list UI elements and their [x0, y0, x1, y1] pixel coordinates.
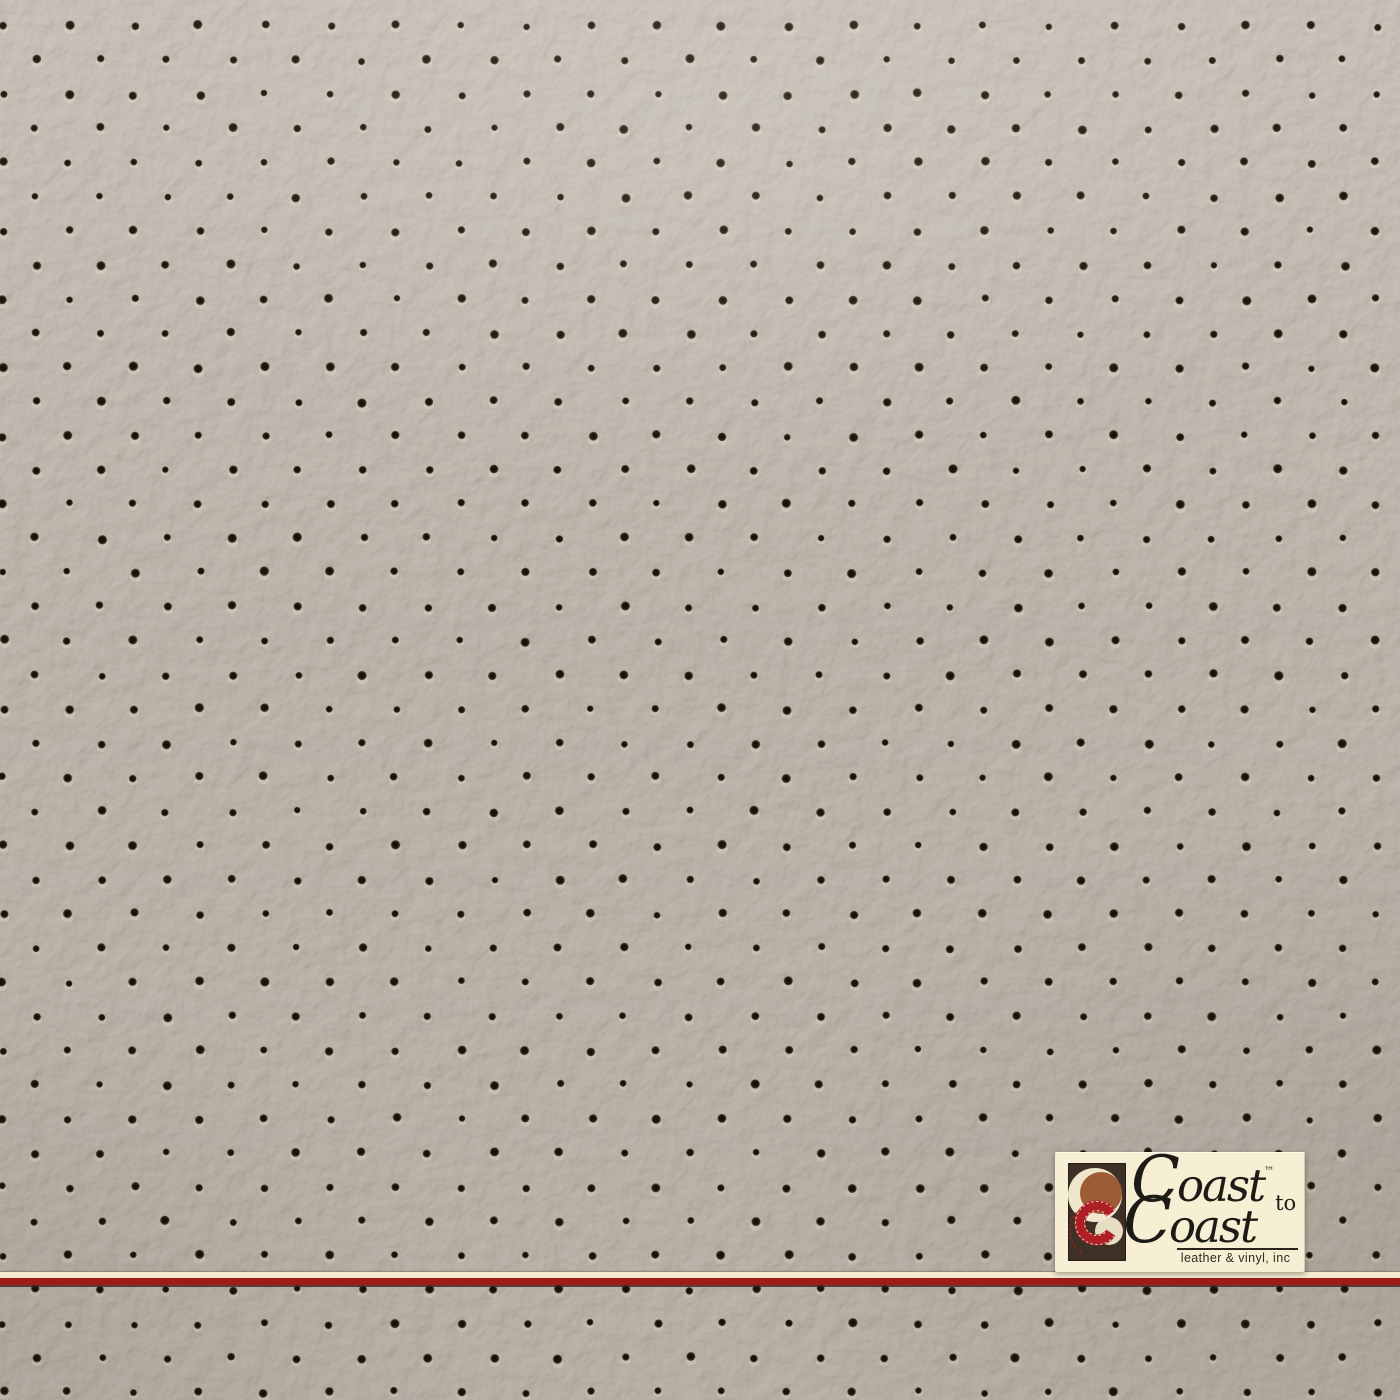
perforation-hole — [1340, 672, 1350, 684]
perforation-hole — [1370, 157, 1380, 169]
perforation-hole — [29, 1218, 38, 1229]
perforation-hole — [781, 498, 793, 512]
perforation-hole — [785, 160, 794, 170]
perforation-hole — [555, 738, 565, 750]
perforation-hole — [621, 397, 630, 408]
perforation-hole — [162, 1148, 171, 1158]
perforation-hole — [0, 634, 10, 648]
perforation-hole — [1338, 875, 1349, 888]
perforation-hole — [63, 1116, 72, 1127]
perforation-hole — [782, 91, 793, 104]
perforation-hole — [1013, 945, 1023, 957]
perforation-hole — [781, 1387, 791, 1399]
perforation-hole — [0, 228, 9, 240]
perforation-hole — [196, 841, 205, 852]
logo-word2-rest: oast — [1169, 1200, 1256, 1253]
perforation-hole — [816, 876, 826, 888]
perforation-hole — [1044, 363, 1053, 374]
perforation-hole — [1338, 55, 1347, 66]
perforation-hole — [848, 20, 859, 33]
perforation-hole — [948, 1079, 958, 1091]
perforation-hole — [1175, 1388, 1184, 1398]
perforation-hole — [160, 809, 169, 820]
perforation-hole — [1207, 535, 1216, 546]
perforation-hole — [193, 1321, 202, 1332]
perforation-hole — [98, 673, 107, 683]
perforation-hole — [1239, 705, 1250, 718]
perforation-hole — [1043, 569, 1054, 582]
perforation-hole — [520, 296, 529, 307]
perforation-hole — [752, 878, 761, 888]
perforation-hole — [1076, 1354, 1086, 1366]
perforation-hole — [131, 294, 140, 305]
perforation-hole — [1012, 467, 1020, 477]
perforation-hole — [555, 1013, 564, 1023]
perforation-hole — [228, 465, 239, 478]
perforation-hole — [653, 912, 662, 922]
perforation-hole — [1174, 364, 1185, 377]
perforation-hole — [553, 55, 562, 66]
perforation-hole — [324, 1321, 334, 1332]
perforation-hole — [458, 363, 467, 374]
perforation-hole — [750, 399, 759, 410]
perforation-hole — [1174, 773, 1184, 785]
perforation-hole — [194, 1249, 206, 1263]
perforation-hole — [915, 774, 924, 785]
perforation-hole — [718, 364, 727, 375]
perforation-hole — [650, 296, 661, 309]
perforation-hole — [650, 1183, 662, 1197]
perforation-hole — [914, 430, 925, 443]
perforation-hole — [1241, 362, 1251, 374]
perforation-hole — [1241, 89, 1250, 100]
perforation-hole — [160, 260, 170, 272]
perforation-hole — [422, 328, 431, 339]
perforation-hole — [1308, 842, 1317, 853]
perforation-hole — [1240, 1319, 1252, 1333]
perforation-hole — [1339, 1012, 1347, 1022]
perforation-hole — [261, 20, 271, 32]
perforation-hole — [781, 706, 792, 719]
perforation-hole — [1240, 431, 1249, 441]
perforation-hole — [260, 1319, 269, 1330]
perforation-hole — [653, 978, 663, 990]
perforation-hole — [130, 1182, 141, 1195]
perforation-hole — [161, 1286, 170, 1297]
perforation-hole — [1208, 1080, 1218, 1092]
perforation-hole — [326, 636, 335, 647]
perforation-hole — [881, 1011, 890, 1022]
perforation-hole — [359, 261, 367, 271]
perforation-hole — [1371, 431, 1381, 443]
perforation-hole — [521, 978, 530, 989]
perforation-hole — [130, 22, 140, 34]
perforation-hole — [848, 841, 857, 852]
perforation-hole — [360, 533, 370, 544]
perforation-hole — [229, 739, 237, 749]
perforation-hole — [489, 396, 499, 408]
perforation-hole — [1077, 602, 1086, 612]
perforation-hole — [491, 877, 499, 887]
perforation-hole — [1371, 1251, 1381, 1263]
perforation-hole — [1177, 22, 1187, 34]
perforation-hole — [585, 908, 596, 922]
perforation-hole — [816, 1012, 826, 1025]
perforation-hole — [881, 1219, 891, 1230]
perforation-hole — [1110, 1113, 1121, 1126]
perforation-hole — [423, 1012, 432, 1023]
perforation-hole — [260, 637, 269, 648]
perforation-hole — [97, 535, 109, 549]
perforation-hole — [585, 1047, 596, 1060]
perforation-hole — [685, 1148, 695, 1160]
perforation-hole — [651, 20, 662, 33]
perforation-hole — [717, 91, 728, 105]
perforation-hole — [618, 124, 629, 138]
perforation-hole — [62, 567, 71, 577]
perforation-hole — [1142, 536, 1151, 547]
perforation-hole — [1370, 501, 1380, 513]
perforation-hole — [393, 295, 401, 305]
perforation-hole — [195, 636, 204, 647]
perforation-hole — [784, 296, 794, 308]
perforation-hole — [194, 159, 203, 170]
perforation-hole — [1338, 466, 1349, 479]
perforation-hole — [95, 1285, 105, 1297]
perforation-hole — [488, 1013, 497, 1024]
perforation-hole — [162, 1081, 173, 1095]
perforation-hole — [424, 945, 433, 955]
perforation-hole — [127, 1115, 138, 1128]
perforation-hole — [31, 328, 41, 340]
perforation-hole — [488, 808, 499, 821]
perforation-hole — [358, 604, 368, 616]
perforation-hole — [980, 156, 991, 170]
perforation-hole — [1177, 637, 1186, 648]
perforation-hole — [226, 943, 237, 956]
perforation-hole — [979, 226, 990, 239]
perforation-hole — [1307, 978, 1318, 991]
perforation-hole — [1369, 635, 1380, 649]
perforation-hole — [1143, 1012, 1153, 1024]
perforation-hole — [1373, 24, 1382, 35]
perforation-hole — [291, 532, 303, 546]
perforation-hole — [620, 1149, 629, 1160]
perforation-hole — [357, 739, 366, 750]
perforation-hole — [424, 1217, 435, 1230]
perforation-hole — [1108, 909, 1119, 922]
perforation-hole — [685, 1352, 696, 1366]
perforation-hole — [389, 772, 399, 784]
perforation-hole — [651, 705, 660, 716]
perforation-hole — [258, 771, 269, 785]
perforation-hole — [881, 1080, 890, 1091]
perforation-hole — [915, 568, 924, 579]
perforation-hole — [588, 431, 599, 444]
perforation-hole — [356, 1354, 367, 1367]
perforation-hole — [30, 1079, 40, 1091]
perforation-hole — [750, 740, 761, 753]
perforation-hole — [326, 500, 336, 513]
perforation-hole — [1338, 191, 1349, 204]
perforation-hole — [290, 55, 301, 68]
perforation-hole — [652, 500, 660, 510]
perforation-hole — [882, 398, 893, 411]
perforation-hole — [1373, 1183, 1382, 1194]
perforation-hole — [554, 1217, 565, 1230]
perforation-hole — [1307, 365, 1315, 375]
perforation-hole — [1338, 330, 1349, 343]
perforation-hole — [260, 1184, 270, 1195]
perforation-hole — [783, 22, 794, 36]
perforation-hole — [1207, 808, 1217, 820]
perforation-hole — [489, 56, 500, 69]
perforation-hole — [389, 1387, 398, 1398]
perforation-hole — [914, 1045, 923, 1055]
perforation-hole — [0, 1182, 7, 1192]
perforation-hole — [192, 364, 204, 378]
perforation-hole — [291, 1081, 300, 1091]
perforation-hole — [490, 534, 499, 544]
perforation-hole — [882, 672, 891, 683]
perforation-hole — [1307, 909, 1316, 920]
perforation-hole — [1177, 567, 1188, 580]
perforation-hole — [946, 1215, 957, 1228]
perforation-hole — [65, 980, 73, 990]
perforation-hole — [390, 362, 401, 375]
perforation-hole — [95, 122, 105, 135]
perforation-hole — [31, 54, 42, 67]
perforation-hole — [390, 20, 400, 33]
perforation-hole — [457, 774, 466, 784]
perforation-hole — [717, 500, 728, 513]
perforation-hole — [913, 22, 922, 33]
perforation-hole — [946, 604, 954, 614]
perforation-hole — [1176, 1318, 1188, 1332]
perforation-hole — [1338, 123, 1348, 135]
perforation-hole — [1076, 876, 1087, 889]
perforation-hole — [1373, 842, 1383, 854]
perforation-hole — [1273, 671, 1285, 685]
perforation-hole — [521, 362, 531, 374]
perforation-hole — [1275, 1079, 1284, 1090]
perforation-hole — [783, 976, 794, 990]
perforation-hole — [978, 21, 987, 32]
perforation-hole — [1010, 739, 1022, 753]
perforation-hole — [456, 568, 465, 579]
perforation-hole — [1108, 363, 1120, 377]
perforation-hole — [1109, 842, 1120, 856]
perforation-hole — [1305, 637, 1315, 649]
perforation-hole — [1173, 1115, 1184, 1129]
perforation-hole — [1276, 1013, 1285, 1023]
perforation-hole — [194, 431, 203, 442]
perforation-hole — [816, 194, 825, 204]
perforation-hole — [848, 706, 858, 718]
perforation-hole — [683, 671, 694, 684]
perforation-hole — [1176, 225, 1187, 238]
perforation-hole — [1078, 670, 1088, 682]
perforation-hole — [1144, 1355, 1153, 1366]
perforation-hole — [1306, 1181, 1316, 1193]
perforation-hole — [64, 1321, 73, 1332]
perforation-hole — [64, 841, 75, 855]
perforation-hole — [457, 977, 466, 988]
perforation-hole — [586, 773, 596, 785]
perforation-hole — [424, 604, 434, 616]
perforation-hole — [96, 396, 108, 410]
perforation-hole — [849, 90, 861, 104]
perforation-hole — [455, 636, 464, 646]
perforation-hole — [1012, 1080, 1022, 1092]
perforation-hole — [1142, 464, 1153, 477]
perforation-hole — [519, 637, 530, 651]
perforation-hole — [1338, 944, 1348, 955]
perforation-hole — [1275, 54, 1285, 66]
logo-connector: to — [1275, 1191, 1296, 1215]
perforation-hole — [978, 1113, 989, 1126]
perforation-hole — [327, 22, 336, 33]
perforation-hole — [260, 226, 268, 236]
perforation-hole — [980, 1250, 991, 1263]
perforation-hole — [848, 228, 857, 238]
perforation-hole — [586, 21, 596, 33]
stripe-shadow-line — [0, 1285, 1400, 1287]
perforation-hole — [457, 499, 466, 510]
perforation-hole — [913, 1320, 923, 1332]
perforation-hole — [1240, 635, 1251, 648]
perforation-hole — [848, 432, 860, 446]
perforation-hole — [1208, 602, 1220, 616]
perforation-hole — [749, 330, 759, 341]
perforation-hole — [881, 875, 891, 886]
perforation-hole — [391, 910, 400, 921]
perforation-hole — [1177, 158, 1186, 169]
perforation-hole — [261, 432, 270, 443]
perforation-hole — [258, 1389, 269, 1400]
perforation-hole — [1044, 1388, 1053, 1398]
perforation-hole — [1209, 330, 1219, 341]
perforation-hole — [227, 123, 239, 137]
perforation-hole — [457, 226, 467, 237]
perforation-hole — [357, 1080, 367, 1092]
perforation-hole — [390, 90, 401, 103]
perforation-hole — [1209, 1354, 1217, 1364]
perforation-hole — [715, 21, 727, 35]
perforation-hole — [97, 806, 108, 819]
perforation-hole — [1013, 603, 1024, 617]
perforation-hole — [195, 911, 205, 923]
perforation-hole — [324, 566, 335, 580]
perforation-hole — [490, 739, 498, 749]
perforation-hole — [96, 55, 105, 66]
perforation-hole — [949, 533, 958, 544]
perforation-hole — [945, 1013, 955, 1025]
perforation-hole — [654, 91, 663, 101]
perforation-hole — [1078, 465, 1086, 475]
perforation-hole — [521, 1390, 530, 1400]
perforation-hole — [1306, 226, 1314, 236]
perforation-hole — [1078, 261, 1089, 274]
perforation-hole — [390, 840, 402, 854]
perforation-hole — [195, 91, 206, 104]
perforation-hole — [1274, 875, 1283, 885]
perforation-hole — [391, 636, 400, 647]
perforation-hole — [815, 1217, 826, 1230]
perforation-hole — [360, 192, 369, 203]
perforation-hole — [1043, 772, 1054, 786]
perforation-hole — [62, 773, 73, 787]
perforation-hole — [1111, 1321, 1119, 1331]
perforation-hole — [194, 1115, 205, 1128]
perforation-hole — [422, 1149, 432, 1161]
perforation-hole — [260, 159, 269, 170]
perforation-hole — [1108, 430, 1119, 444]
perforation-hole — [1144, 670, 1154, 682]
perforation-hole — [162, 944, 171, 954]
perforation-hole — [817, 330, 827, 342]
perforation-hole — [749, 533, 759, 545]
perforation-hole — [457, 21, 465, 31]
perforation-hole — [684, 1013, 694, 1025]
perforation-hole — [294, 329, 302, 339]
perforation-hole — [882, 330, 891, 341]
perforation-hole — [1175, 977, 1185, 989]
perforation-hole — [618, 670, 629, 683]
perforation-hole — [0, 1386, 10, 1399]
perforation-hole — [1241, 978, 1250, 989]
logo-mark-icon — [1068, 1163, 1126, 1261]
perforation-hole — [162, 124, 170, 134]
perforation-hole — [620, 57, 629, 68]
perforation-hole — [849, 910, 860, 923]
perforation-hole — [1243, 1388, 1253, 1399]
perforation-hole — [194, 771, 205, 784]
perforation-hole — [323, 293, 335, 307]
perforation-hole — [457, 1319, 468, 1332]
perforation-hole — [817, 943, 826, 954]
perforation-hole — [228, 809, 237, 820]
perforation-hole — [1012, 191, 1023, 204]
perforation-hole — [30, 602, 40, 614]
perforation-hole — [586, 1319, 595, 1329]
perforation-hole — [1108, 977, 1118, 989]
perforation-hole — [393, 706, 402, 716]
perforation-hole — [65, 226, 75, 238]
perforation-hole — [130, 568, 141, 582]
perforation-hole — [1272, 464, 1284, 478]
perforation-hole — [1076, 398, 1085, 409]
perforation-hole — [227, 874, 237, 886]
perforation-hole — [1339, 534, 1347, 544]
perforation-hole — [947, 57, 956, 67]
perforation-hole — [618, 1012, 627, 1022]
coast-to-coast-logo: Coast™to Coast leather & vinyl, inc — [1055, 1152, 1305, 1272]
perforation-hole — [425, 262, 434, 273]
perforation-hole — [1207, 944, 1217, 956]
perforation-hole — [295, 672, 304, 683]
perforation-hole — [292, 263, 301, 273]
perforation-hole — [1177, 1045, 1187, 1058]
perforation-hole — [717, 908, 728, 921]
perforation-hole — [1372, 91, 1381, 101]
perforation-hole — [1044, 158, 1053, 169]
perforation-hole — [457, 1252, 466, 1263]
perforation-hole — [1371, 911, 1380, 921]
perforation-hole — [586, 295, 597, 308]
perforation-hole — [1144, 398, 1153, 408]
perforation-hole — [0, 910, 10, 923]
